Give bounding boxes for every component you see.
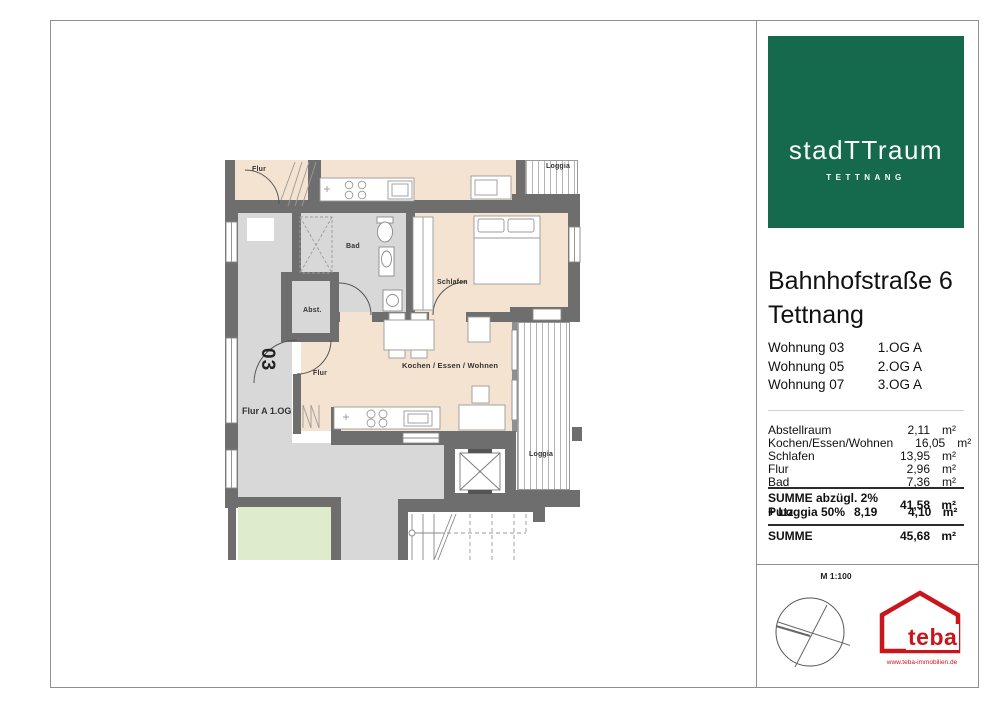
unit-row: Wohnung 07 3.OG A	[768, 375, 964, 394]
unit-row: Wohnung 05 2.OG A	[768, 357, 964, 376]
floor-green-room	[238, 507, 331, 560]
area-unit: m²	[930, 462, 964, 476]
wall	[512, 322, 517, 432]
loggia-unit: m²	[931, 505, 965, 519]
area-name: Kochen/Essen/Wohnen	[768, 436, 893, 450]
unit-floor: 2.OG A	[878, 359, 964, 374]
wall	[398, 499, 408, 560]
brand-subtitle: TETTNANG	[826, 173, 906, 182]
room-label-loggia: Loggia	[529, 451, 553, 458]
floor-kochen	[336, 312, 512, 431]
loggia-value: 4,10	[879, 505, 931, 519]
room-label-kochen: Kochen / Essen / Wohnen	[402, 361, 498, 370]
subtotal-row: SUMME abzügl. 2% Putz 41,58 m²	[768, 491, 964, 505]
area-table: Abstellraum 2,11 m² Kochen/Essen/Wohnen …	[768, 423, 964, 487]
wall	[572, 427, 582, 441]
brand-logo: stadTTraum TETTNANG	[768, 36, 964, 228]
divider	[768, 524, 964, 526]
wall	[406, 213, 415, 315]
teba-logo-text: teba	[906, 624, 959, 650]
room-label-abst: Abst.	[303, 307, 322, 314]
wall	[225, 213, 238, 508]
wall	[331, 407, 341, 431]
total-value: 45,68	[878, 529, 930, 543]
compass-icon	[770, 592, 850, 672]
floor-common-hall-lower	[336, 505, 398, 560]
area-row: Schlafen 13,95 m²	[768, 449, 964, 462]
floor-top-strip	[321, 160, 516, 202]
panel-divider-vertical	[756, 20, 757, 688]
hall-niche	[247, 218, 274, 241]
wall	[510, 307, 580, 322]
unit-name: Wohnung 03	[768, 340, 844, 355]
wall	[516, 160, 525, 196]
room-label-bad: Bad	[346, 243, 360, 250]
floor-schlafen	[406, 213, 568, 312]
area-unit: m²	[930, 449, 964, 463]
area-value: 2,11	[878, 423, 930, 437]
total-label: SUMME	[768, 529, 878, 543]
subtotal-block: SUMME abzügl. 2% Putz 41,58 m² + Loggia …	[768, 491, 964, 518]
panel-divider-horizontal	[756, 564, 979, 565]
area-unit: m²	[930, 423, 964, 437]
floor-loggia-right	[517, 322, 570, 490]
wall	[415, 312, 429, 322]
room-label-loggia-top: Loggia	[546, 163, 570, 170]
area-row: Bad 7,36 m²	[768, 475, 964, 488]
address-block: Bahnhofstraße 6 Tettnang	[768, 264, 953, 332]
area-name: Abstellraum	[768, 423, 878, 437]
wall	[331, 497, 341, 560]
elevator-shaft	[455, 449, 505, 493]
brand-name: stadTTraum	[789, 135, 943, 166]
total-unit: m²	[930, 529, 964, 543]
wall	[330, 312, 340, 322]
wall	[372, 312, 415, 322]
divider	[768, 487, 964, 489]
wall	[330, 272, 339, 342]
unit-row: Wohnung 03 1.OG A	[768, 338, 964, 357]
wall	[225, 200, 580, 213]
wall	[533, 499, 545, 522]
room-label-flur-top: Flur	[252, 166, 266, 173]
floor-flur-top	[235, 160, 310, 205]
wall	[568, 213, 580, 313]
address-line2: Tettnang	[768, 298, 953, 332]
area-row: Kochen/Essen/Wohnen 16,05 m²	[768, 436, 964, 449]
loggia-label: + Loggia 50%	[768, 505, 854, 519]
wall	[281, 272, 292, 342]
unit-list: Wohnung 03 1.OG A Wohnung 05 2.OG A Wohn…	[768, 338, 964, 394]
loggia-gross: 8,19	[854, 505, 879, 519]
area-value: 2,96	[878, 462, 930, 476]
area-row: Flur 2,96 m²	[768, 462, 964, 475]
room-label-schlafen: Schlafen	[437, 279, 468, 286]
wall	[233, 497, 336, 507]
wall	[292, 213, 301, 277]
unit-floor: 3.OG A	[878, 377, 964, 392]
room-label-flur: Flur	[313, 370, 327, 377]
unit-name: Wohnung 07	[768, 377, 844, 392]
room-label-hall: Flur A 1.OG	[242, 406, 291, 416]
area-name: Schlafen	[768, 449, 878, 463]
floor-common-hall-bottom	[238, 443, 444, 505]
area-value: 16,05	[893, 436, 945, 450]
wall	[293, 374, 301, 434]
total-row: SUMME 45,68 m²	[768, 529, 964, 543]
unit-floor: 1.OG A	[878, 340, 964, 355]
page: Flur Loggia Bad Abst. Schlafen Kochen / …	[0, 0, 1000, 707]
unit-number: 03	[258, 348, 278, 392]
area-value: 13,95	[878, 449, 930, 463]
area-unit: m²	[945, 436, 979, 450]
area-row: Abstellraum 2,11 m²	[768, 423, 964, 436]
divider	[768, 410, 964, 411]
address-line1: Bahnhofstraße 6	[768, 264, 953, 298]
total-block: SUMME 45,68 m²	[768, 529, 964, 543]
area-name: Flur	[768, 462, 878, 476]
wall	[398, 499, 545, 512]
unit-name: Wohnung 05	[768, 359, 844, 374]
scale-label: M 1:100	[800, 571, 872, 581]
wall	[466, 312, 510, 322]
website-link[interactable]: www.teba-immobilien.de	[876, 659, 968, 666]
loggia-row: + Loggia 50% 8,19 4,10 m²	[768, 505, 964, 519]
wall	[228, 497, 236, 560]
